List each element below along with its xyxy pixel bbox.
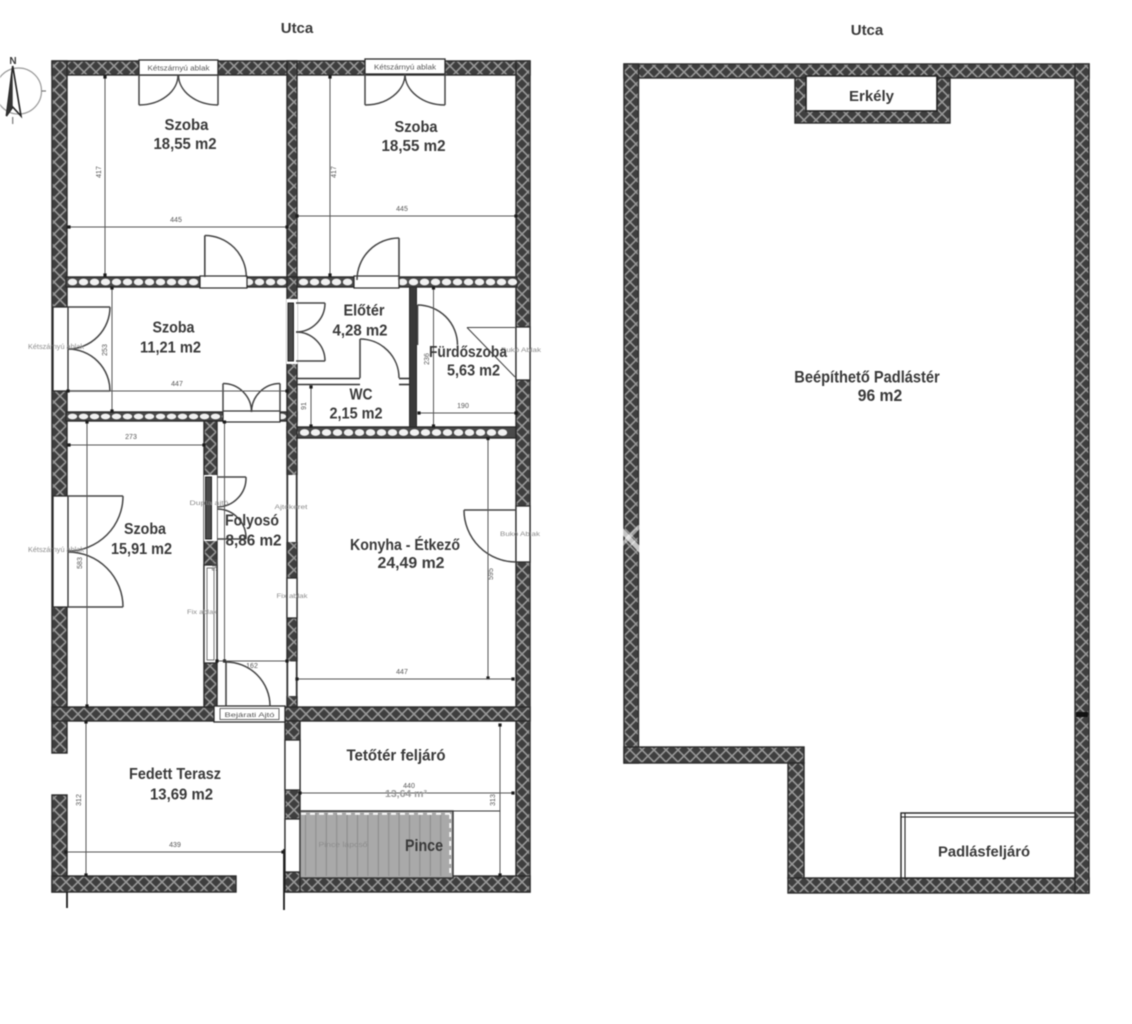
svg-text:Fix ablak: Fix ablak — [277, 593, 309, 600]
svg-text:273: 273 — [125, 434, 137, 441]
svg-text:N: N — [9, 56, 16, 67]
svg-text:439: 439 — [169, 842, 181, 849]
svg-text:445: 445 — [170, 217, 182, 224]
svg-text:Utca: Utca — [851, 22, 884, 39]
svg-text:24,49 m2: 24,49 m2 — [378, 555, 445, 572]
svg-text:Bukó Ablak: Bukó Ablak — [501, 347, 542, 354]
svg-text:4,28 m2: 4,28 m2 — [333, 323, 388, 340]
svg-text:Dupla ajtó: Dupla ajtó — [190, 500, 229, 507]
svg-text:447: 447 — [171, 381, 183, 388]
svg-text:15,91 m2: 15,91 m2 — [111, 541, 172, 558]
svg-text:18,55 m2: 18,55 m2 — [154, 136, 217, 153]
svg-text:583: 583 — [77, 557, 84, 569]
svg-text:Konyha - Étkező: Konyha - Étkező — [350, 535, 460, 554]
svg-text:13,64 m²: 13,64 m² — [385, 789, 428, 800]
svg-text:253: 253 — [102, 344, 109, 356]
svg-text:Fix ablak: Fix ablak — [187, 609, 218, 616]
svg-text:313: 313 — [490, 794, 497, 806]
svg-text:312: 312 — [76, 794, 83, 806]
svg-text:WC: WC — [350, 387, 373, 404]
svg-text:Pince lápcső: Pince lápcső — [319, 842, 368, 849]
svg-text:Kétszárnyú ablak: Kétszárnyú ablak — [28, 344, 85, 351]
svg-text:Szoba: Szoba — [124, 521, 166, 538]
svg-text:8,86 m2: 8,86 m2 — [226, 533, 282, 550]
svg-text:Tetőtér feljáró: Tetőtér feljáró — [347, 748, 446, 765]
svg-text:162: 162 — [246, 663, 258, 670]
svg-text:Ajtókeret: Ajtókeret — [275, 504, 308, 511]
svg-text:447: 447 — [396, 669, 408, 676]
svg-text:Beépíthető Padlástér: Beépíthető Padlástér — [794, 369, 940, 387]
svg-text:Fürdőszoba: Fürdőszoba — [429, 344, 507, 361]
svg-text:Előtér: Előtér — [344, 303, 385, 320]
svg-text:5,63 m2: 5,63 m2 — [447, 363, 500, 380]
svg-text:Erkély: Erkély — [849, 88, 895, 105]
svg-text:595: 595 — [488, 568, 495, 580]
svg-text:417: 417 — [96, 166, 103, 178]
svg-text:96 m2: 96 m2 — [858, 387, 903, 405]
svg-text:Kétszárnyú ablak: Kétszárnyú ablak — [28, 547, 85, 554]
svg-text:11,21 m2: 11,21 m2 — [140, 340, 201, 357]
svg-text:Bukó Ablak: Bukó Ablak — [500, 531, 541, 538]
svg-text:417: 417 — [331, 166, 338, 178]
svg-text:Szoba: Szoba — [395, 119, 438, 136]
svg-text:Kétszárnyú ablak: Kétszárnyú ablak — [148, 66, 211, 73]
svg-text:Fedett Terasz: Fedett Terasz — [129, 766, 221, 783]
svg-text:Bejárati Ajtó: Bejárati Ajtó — [225, 712, 276, 719]
svg-text:583: 583 — [212, 559, 219, 571]
svg-text:Szoba: Szoba — [153, 320, 195, 337]
svg-text:Padlásfeljáró: Padlásfeljáró — [938, 844, 1030, 861]
svg-text:Szoba: Szoba — [165, 117, 209, 134]
svg-text:190: 190 — [457, 403, 469, 410]
svg-text:Folyosó: Folyosó — [225, 513, 279, 530]
svg-text:Kétszárnyú ablak: Kétszárnyú ablak — [374, 65, 437, 72]
svg-text:445: 445 — [396, 206, 408, 213]
svg-text:13,69 m2: 13,69 m2 — [150, 787, 213, 804]
svg-text:Utca: Utca — [281, 20, 314, 37]
svg-text:Pince: Pince — [405, 836, 443, 855]
svg-text:91: 91 — [301, 402, 308, 410]
svg-text:18,55 m2: 18,55 m2 — [382, 138, 446, 155]
svg-text:2,15 m2: 2,15 m2 — [330, 406, 383, 423]
